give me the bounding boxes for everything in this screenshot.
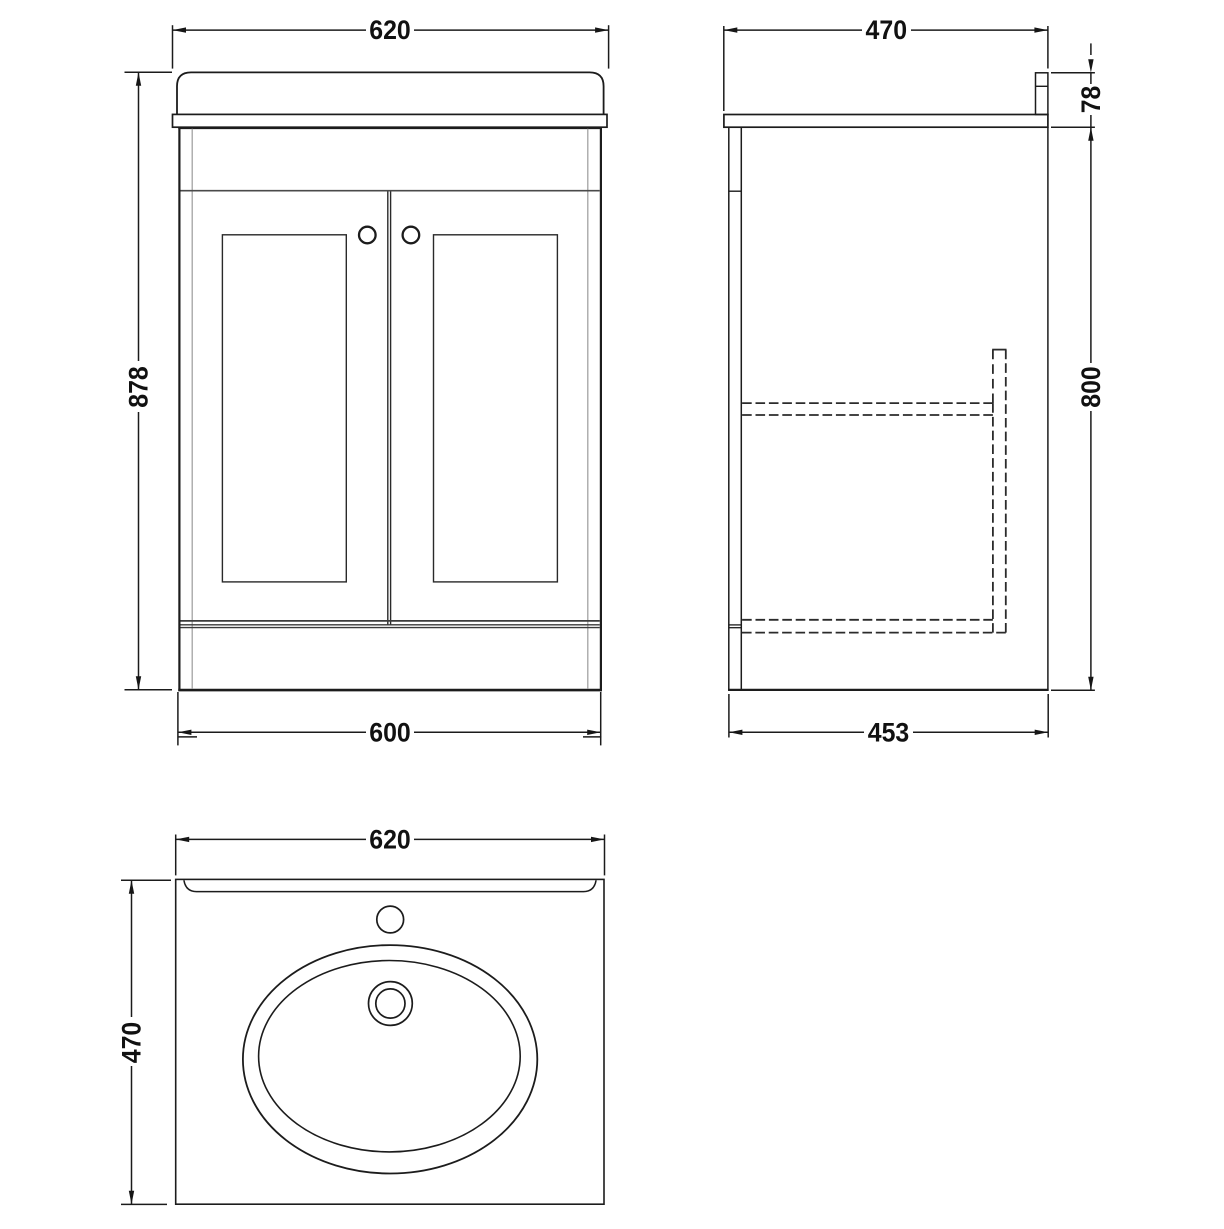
svg-text:470: 470	[866, 15, 908, 45]
svg-text:470: 470	[117, 1022, 147, 1064]
svg-text:78: 78	[1076, 86, 1106, 114]
svg-text:878: 878	[123, 366, 153, 408]
svg-text:600: 600	[369, 717, 411, 747]
svg-text:800: 800	[1076, 366, 1106, 408]
svg-text:620: 620	[369, 15, 411, 45]
svg-text:453: 453	[868, 717, 910, 747]
svg-text:620: 620	[369, 825, 411, 855]
